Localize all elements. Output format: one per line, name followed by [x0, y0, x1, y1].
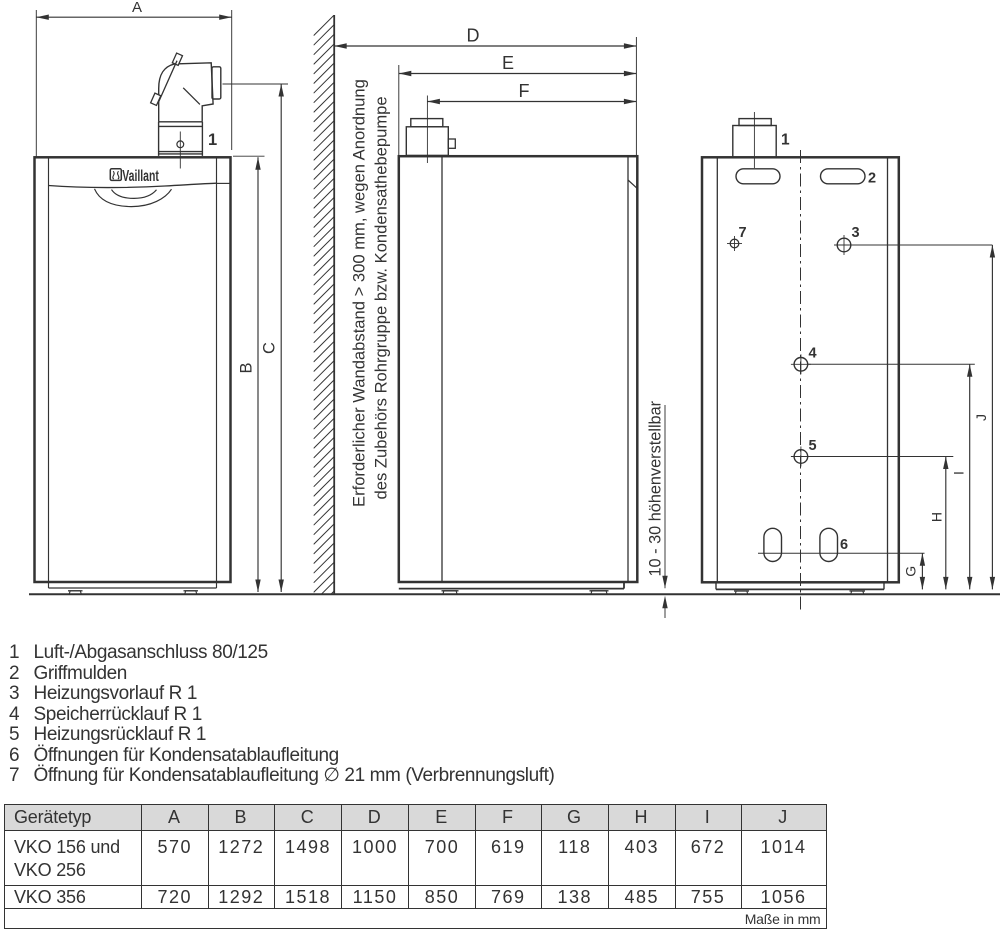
svg-text:H: H: [929, 512, 945, 522]
svg-text:I: I: [951, 471, 967, 475]
svg-text:F: F: [519, 81, 530, 101]
svg-text:1: 1: [781, 132, 790, 149]
svg-text:6: 6: [840, 537, 848, 553]
svg-text:Vaillant: Vaillant: [122, 168, 159, 185]
svg-text:7: 7: [739, 225, 747, 241]
svg-text:10 - 30 höhenverstellbar: 10 - 30 höhenverstellbar: [647, 400, 665, 576]
svg-text:C: C: [261, 342, 279, 354]
svg-text:B: B: [238, 362, 256, 373]
svg-text:A: A: [132, 0, 142, 16]
svg-text:1: 1: [208, 131, 217, 149]
svg-text:des Zubehörs Rohrgruppe bzw. K: des Zubehörs Rohrgruppe bzw. Kondensathe…: [371, 96, 390, 499]
svg-text:J: J: [973, 414, 989, 421]
svg-text:4: 4: [809, 346, 817, 362]
svg-text:5: 5: [809, 438, 817, 454]
svg-text:D: D: [467, 26, 480, 46]
svg-text:Erforderlicher Wandabstand > 3: Erforderlicher Wandabstand > 300 mm, weg…: [350, 79, 369, 507]
svg-text:2: 2: [868, 171, 876, 187]
svg-text:E: E: [502, 53, 514, 73]
svg-text:3: 3: [852, 225, 860, 241]
svg-text:G: G: [903, 566, 919, 577]
